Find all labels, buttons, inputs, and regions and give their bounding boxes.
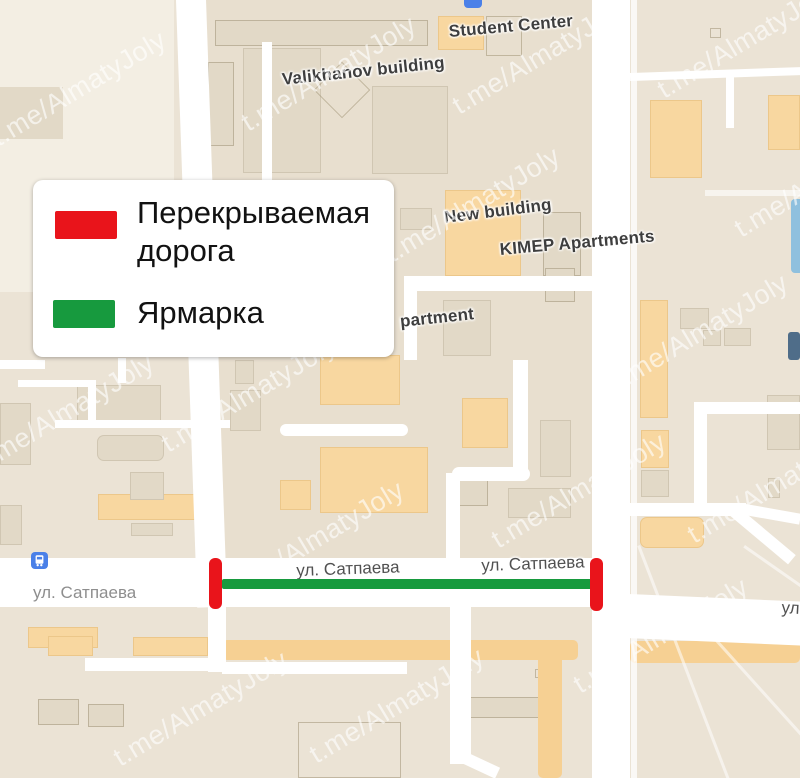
building	[540, 420, 571, 477]
closed-road-marker-west	[209, 558, 222, 609]
poi-icon	[788, 332, 800, 360]
building-landmark	[133, 637, 208, 656]
closed-road-marker-east	[590, 558, 603, 611]
building-landmark	[280, 480, 311, 510]
closed-road-swatch	[55, 211, 117, 239]
building	[97, 435, 164, 461]
road-path	[513, 360, 528, 472]
building	[457, 478, 488, 506]
building	[208, 62, 234, 146]
building-landmark	[462, 398, 508, 448]
building-landmark	[48, 636, 93, 656]
road-path	[404, 276, 598, 291]
building-landmark	[650, 100, 702, 178]
road-path	[446, 473, 460, 563]
building	[130, 472, 164, 500]
legend: Перекрываемая дорога Ярмарка	[33, 180, 394, 357]
building	[38, 699, 79, 725]
building	[372, 86, 448, 174]
street-label-satpayeva: ул. Сатпаева	[296, 557, 400, 581]
fair-label: Ярмарка	[137, 294, 264, 332]
road-path	[280, 424, 408, 436]
fair-swatch	[53, 300, 115, 328]
bus-stop-icon	[31, 552, 48, 569]
building	[641, 470, 669, 497]
watermark-text: t.me/AlmatyJoly	[0, 24, 172, 153]
building-landmark	[768, 95, 800, 150]
building	[0, 505, 22, 545]
bus-stop-icon	[464, 0, 482, 8]
road-secondary	[538, 645, 562, 778]
street-label-satpayeva: ул. Сатпаева	[33, 583, 136, 603]
fair-line	[222, 579, 593, 589]
closed-road-label: Перекрываемая дорога	[137, 194, 392, 270]
road-path	[726, 74, 734, 128]
road-path	[452, 467, 530, 481]
bus-glyph	[33, 554, 46, 567]
road-path	[694, 402, 707, 515]
building	[131, 523, 173, 536]
street-label-satpayeva: ул. Сатпаева	[481, 552, 585, 576]
building	[88, 704, 124, 727]
map-screenshot: ул. имени Валиханова проспект Достык про…	[0, 0, 800, 778]
road-path	[694, 402, 800, 414]
road-path	[0, 360, 45, 369]
road-path	[85, 658, 213, 671]
